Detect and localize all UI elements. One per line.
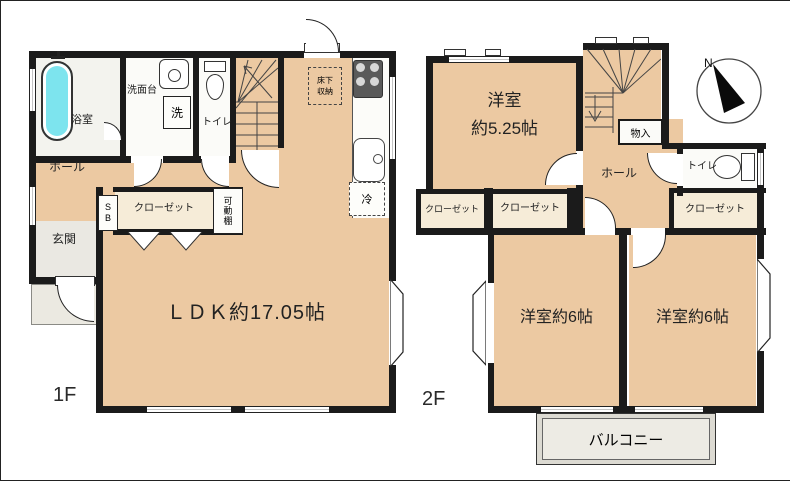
- wall: [619, 228, 627, 413]
- floor-plan: 洗 冷 床下 収納 SB 可動棚 浴室 洗面台 トイレ ホール 玄関 クローゼッ…: [0, 0, 790, 481]
- balcony-inner: バルコニー: [542, 418, 710, 460]
- floor2-label: 2F: [422, 388, 445, 411]
- wall: [416, 189, 583, 194]
- stairs-1f-icon: [236, 58, 278, 156]
- wall: [193, 58, 199, 156]
- ldk-label: ＬＤＫ約17.05帖: [101, 302, 391, 325]
- fridge-label: 冷: [362, 191, 373, 207]
- movable-shelf: 可動棚: [213, 188, 243, 234]
- toilet-tank-icon: [741, 153, 755, 181]
- door-opening: [585, 228, 615, 235]
- washer-label: 洗: [171, 104, 183, 121]
- sink-faucet-icon: [373, 154, 383, 164]
- toilet-bowl-icon: [713, 155, 741, 179]
- closet-left-label: クローゼット: [418, 204, 486, 214]
- underfloor-label-1: 床下: [317, 75, 333, 86]
- wall: [567, 188, 583, 233]
- bedroom-525-size: 約5.25帖: [433, 119, 576, 139]
- faucet-icon: [57, 51, 60, 59]
- window-symbol: [635, 406, 703, 413]
- underfloor-storage: 床下 収納: [308, 67, 342, 105]
- entrance-label: 玄関: [52, 233, 76, 247]
- window-symbol: [29, 69, 36, 111]
- floor1-label: 1F: [53, 384, 76, 407]
- compass-icon: N: [691, 51, 765, 127]
- balcony-label: バルコニー: [589, 429, 664, 450]
- wall: [488, 406, 764, 413]
- burner-icon: [370, 77, 379, 86]
- bay-window-icon: [390, 277, 405, 369]
- toilet-label-2f: トイレ: [687, 161, 717, 173]
- wall: [662, 43, 669, 146]
- window-symbol: [389, 77, 396, 159]
- window-symbol: [147, 406, 231, 413]
- door-opening: [576, 151, 583, 185]
- closet-label-1f: クローゼット: [115, 203, 213, 215]
- bedroom-right-label: 洋室約6帖: [629, 309, 756, 327]
- room-toilet-1f: [199, 58, 231, 156]
- burner-icon: [356, 77, 365, 86]
- room-entrance: [36, 221, 96, 277]
- wall: [426, 56, 433, 191]
- door-opening: [631, 228, 665, 235]
- fridge-space: 冷: [349, 182, 385, 216]
- toilet-tank-icon: [204, 61, 226, 72]
- window-symbol: [444, 49, 466, 56]
- compass-n-label: N: [704, 56, 713, 70]
- window-symbol: [541, 406, 613, 413]
- toilet-label-1f: トイレ: [202, 117, 232, 129]
- wall: [120, 58, 126, 156]
- folding-door-icon: [126, 230, 212, 252]
- storage-label: 物入: [631, 125, 651, 140]
- closet-center-label: クローゼット: [491, 203, 569, 215]
- wall: [29, 51, 396, 58]
- hall-label-2f: ホール: [601, 167, 637, 181]
- door-arc: [306, 19, 339, 52]
- burner-icon: [370, 63, 379, 72]
- hall-label-1f: ホール: [49, 161, 85, 175]
- shoe-box-label: SB: [103, 202, 113, 224]
- movable-shelf-label: 可動棚: [222, 196, 235, 226]
- window-symbol: [245, 406, 329, 413]
- storage-2f: 物入: [618, 119, 663, 145]
- wall: [278, 51, 284, 148]
- wall: [669, 188, 766, 193]
- window-symbol: [449, 56, 509, 63]
- washer-space: 洗: [163, 96, 191, 129]
- bathtub-icon: [41, 61, 73, 141]
- burner-icon: [356, 63, 365, 72]
- window-symbol: [633, 37, 649, 44]
- washstand-label: 洗面台: [127, 85, 157, 97]
- window-symbol: [485, 49, 501, 56]
- washbasin-bowl-icon: [168, 69, 181, 82]
- window-symbol: [757, 153, 764, 185]
- bedroom-left-label: 洋室約6帖: [494, 309, 619, 327]
- door-opening: [677, 154, 683, 186]
- closet-right-label: クローゼット: [673, 204, 757, 216]
- window-symbol: [595, 37, 617, 44]
- window-symbol: [29, 187, 36, 225]
- bay-window-icon: [470, 279, 486, 367]
- bedroom-525-name: 洋室: [433, 91, 576, 111]
- bay-window-icon: [757, 257, 773, 355]
- underfloor-label-2: 収納: [317, 86, 333, 97]
- bathroom-label: 浴室: [71, 114, 93, 127]
